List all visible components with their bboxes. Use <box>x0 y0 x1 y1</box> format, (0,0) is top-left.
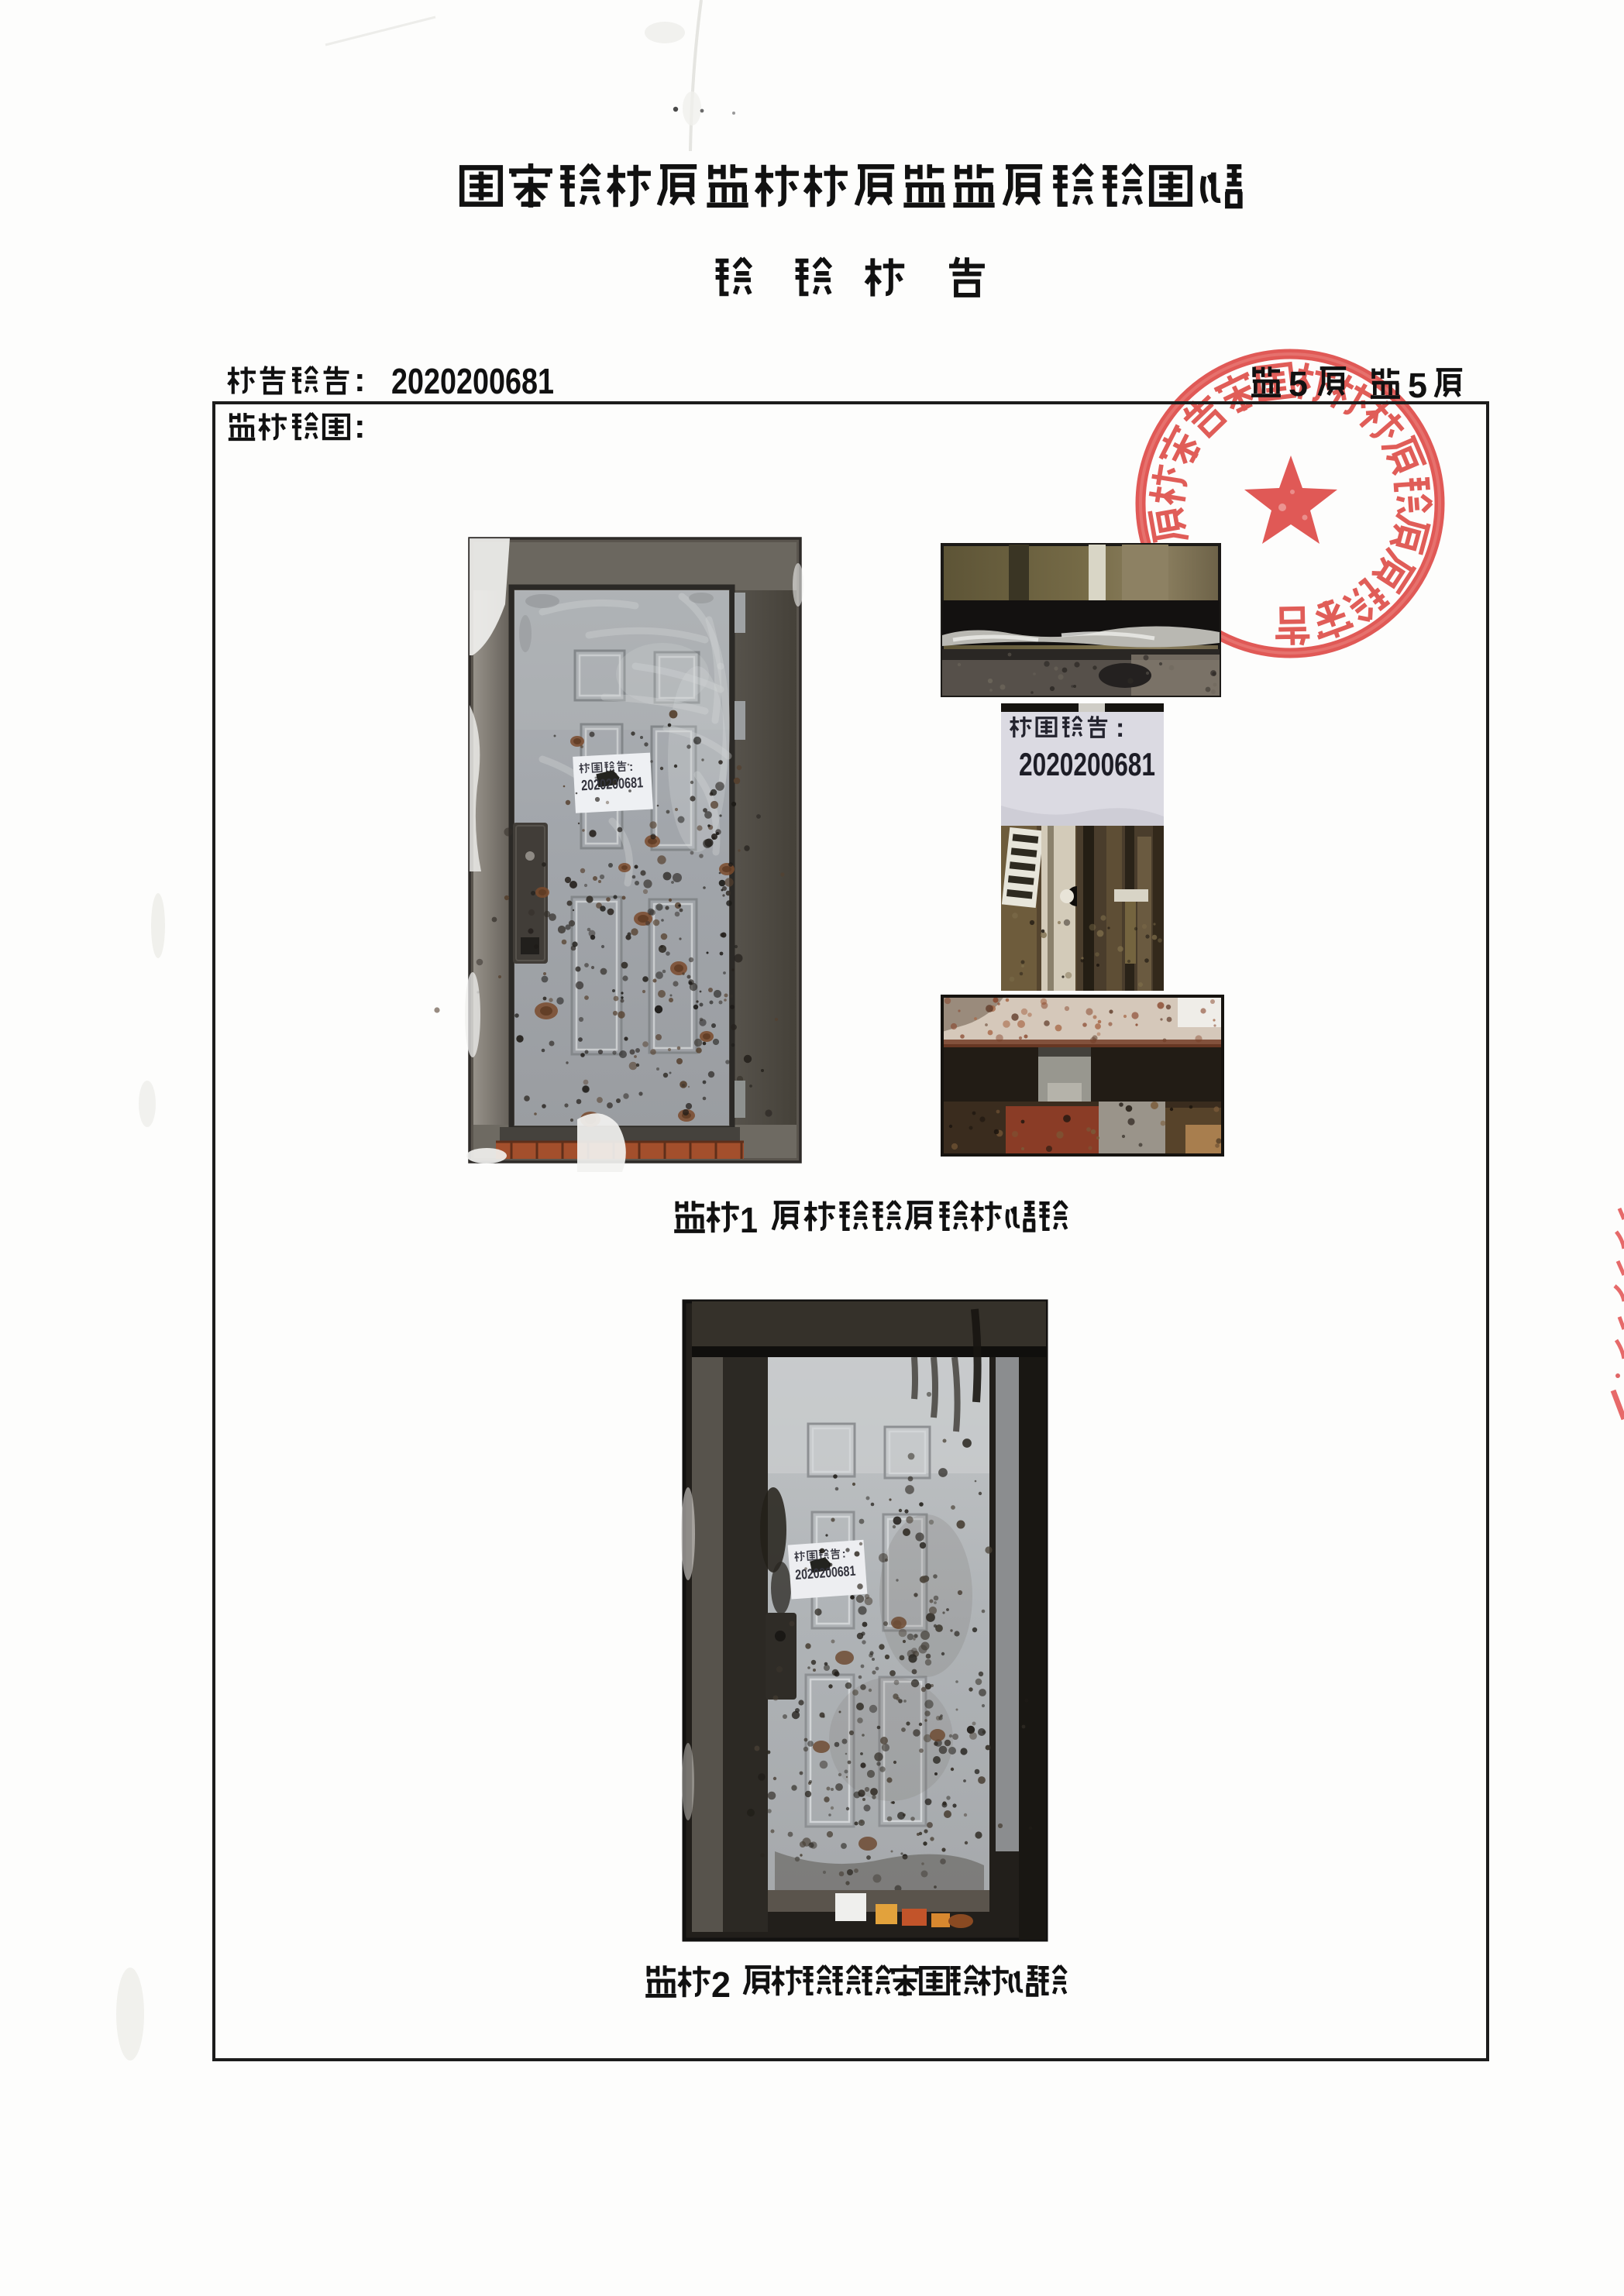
svg-text:2020200681: 2020200681 <box>1019 746 1155 782</box>
svg-text::: : <box>354 407 366 445</box>
svg-text:1: 1 <box>740 1200 758 1240</box>
svg-text:2: 2 <box>711 1964 731 2005</box>
svg-text:2020200681: 2020200681 <box>391 361 554 401</box>
svg-text::: : <box>629 761 634 774</box>
svg-text::: : <box>354 361 366 399</box>
svg-text:2020200681: 2020200681 <box>581 775 644 794</box>
svg-text:5: 5 <box>1408 366 1427 405</box>
svg-text::: : <box>1116 713 1124 743</box>
svg-text:5: 5 <box>1289 364 1308 404</box>
